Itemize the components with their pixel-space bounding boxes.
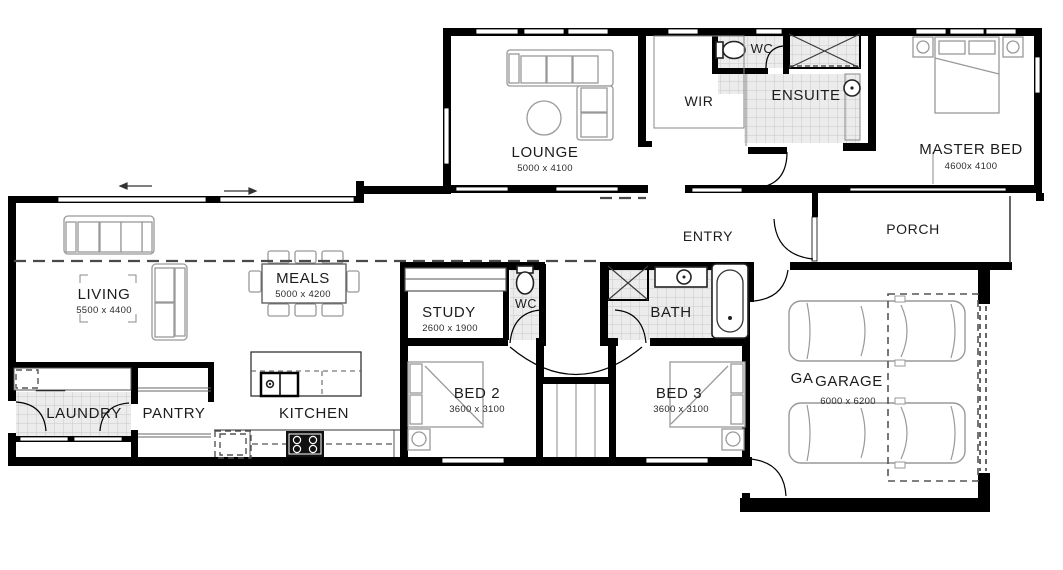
label-pantry: PANTRY: [142, 405, 205, 422]
bedroom-doors-arc: [510, 347, 642, 375]
laundry-side-door-opening: [8, 401, 16, 433]
label-laundry: LAUNDRY: [46, 405, 122, 422]
living-sofa-small: [152, 264, 187, 340]
dims-bed3: 3600 x 3100: [653, 404, 709, 415]
dims-living: 5500 x 4400: [76, 305, 132, 316]
label-garage: GARAGE: [815, 373, 883, 390]
dims-garage: 6000 x 6200: [820, 396, 876, 407]
garage-rear-door-arc: [750, 459, 786, 496]
kitchen-island: [251, 352, 361, 396]
label-bath: BATH: [650, 304, 691, 321]
living-sofa-large: [64, 216, 154, 254]
label-meals: MEALS: [276, 270, 330, 287]
garage-car-top: [789, 296, 965, 366]
label-bed2: BED 2: [454, 385, 500, 402]
lounge-sofa: [507, 50, 613, 140]
label-garage-ghost: GA: [791, 370, 814, 387]
toilet-mid: [517, 266, 534, 294]
cooktop: [286, 431, 324, 457]
label-study: STUDY: [422, 304, 476, 321]
label-lounge: LOUNGE: [512, 144, 579, 161]
sliding-door-arrows: [120, 183, 256, 194]
bathtub: [712, 264, 748, 338]
lounge-round-table: [527, 101, 561, 135]
ensuite-floor-patch: [718, 74, 744, 94]
label-wir: WIR: [684, 93, 713, 109]
floor-plan: LOUNGE 5000 x 4100 WIR WC ENSUITE MASTER…: [0, 0, 1063, 570]
toilet-rear: [716, 42, 745, 59]
label-master-bed: MASTER BED: [919, 141, 1023, 158]
garage-car-bottom: [789, 398, 965, 468]
label-bed3: BED 3: [656, 385, 702, 402]
label-kitchen: KITCHEN: [279, 405, 349, 422]
suite-door-arc: [751, 152, 787, 188]
front-door-leaf: [812, 217, 817, 261]
dims-lounge: 5000 x 4100: [517, 163, 573, 174]
bath-vanity: [655, 267, 707, 287]
label-porch: PORCH: [886, 221, 940, 237]
dims-study: 2600 x 1900: [422, 323, 478, 334]
garage-door-panel: [980, 306, 986, 471]
dims-meals: 5000 x 4200: [275, 289, 331, 300]
label-entry: ENTRY: [683, 228, 733, 244]
garage-entry-door-arc: [754, 270, 788, 301]
ensuite-floor: [744, 74, 860, 143]
label-wc-mid: WC: [515, 297, 537, 311]
garage-entry-door-leaf: [750, 268, 754, 302]
label-wc-rear: WC: [751, 41, 774, 56]
study-desk: [405, 268, 506, 291]
linen-shelves: [557, 384, 595, 457]
label-ensuite: ENSUITE: [771, 87, 840, 104]
front-door-arc: [774, 219, 813, 259]
label-living: LIVING: [78, 286, 131, 303]
floor-plan-page: LOUNGE 5000 x 4100 WIR WC ENSUITE MASTER…: [0, 0, 1063, 570]
master-bed-furniture: [913, 37, 1023, 113]
laundry-bench: [14, 368, 131, 390]
dims-bed2: 3600 x 3100: [449, 404, 505, 415]
windows: [8, 29, 1040, 463]
dims-master-bed: 4600x 4100: [945, 161, 998, 172]
